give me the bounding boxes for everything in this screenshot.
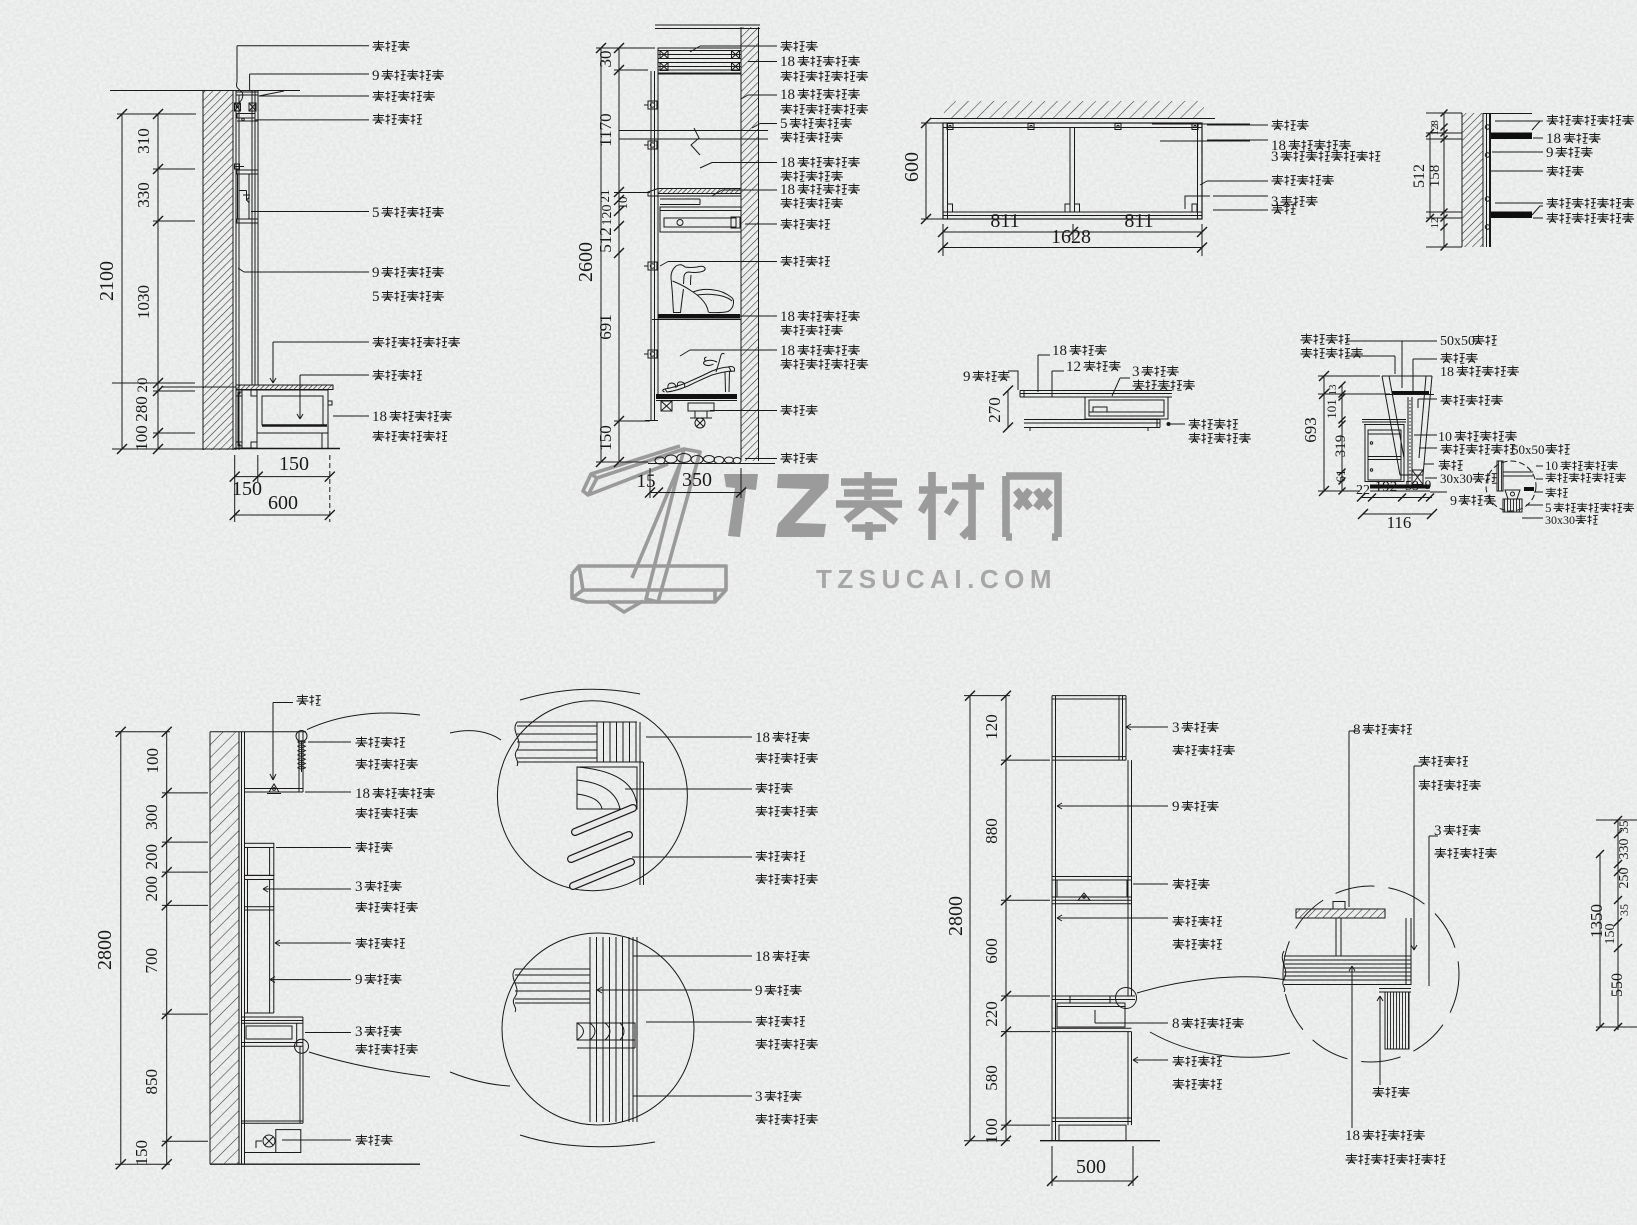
svg-text:3: 3 xyxy=(355,1024,363,1040)
svg-text:9: 9 xyxy=(1450,494,1457,509)
svg-text:3: 3 xyxy=(1132,364,1140,380)
svg-text:30x30: 30x30 xyxy=(1440,471,1473,486)
svg-text:150: 150 xyxy=(132,1140,151,1166)
svg-text:100: 100 xyxy=(143,748,162,774)
svg-text:10: 10 xyxy=(1438,430,1452,445)
svg-text:2100: 2100 xyxy=(96,261,118,301)
svg-text:18: 18 xyxy=(780,182,795,198)
svg-text:9: 9 xyxy=(355,972,363,988)
svg-text:3: 3 xyxy=(1434,823,1442,839)
svg-text:500: 500 xyxy=(1076,1156,1106,1178)
svg-text:30x30: 30x30 xyxy=(1545,513,1575,527)
svg-text:3: 3 xyxy=(1172,720,1180,736)
svg-text:1170: 1170 xyxy=(596,113,615,146)
svg-text:200: 200 xyxy=(142,844,161,870)
svg-text:22: 22 xyxy=(1356,483,1370,498)
svg-text:2800: 2800 xyxy=(945,896,967,936)
svg-text:10: 10 xyxy=(1545,458,1558,473)
svg-text:600: 600 xyxy=(901,152,923,182)
svg-text:100: 100 xyxy=(132,425,151,451)
svg-text:18: 18 xyxy=(780,155,795,171)
svg-text:3: 3 xyxy=(755,1089,763,1105)
svg-text:61: 61 xyxy=(1333,470,1348,483)
svg-text:150: 150 xyxy=(596,425,615,451)
svg-text:15: 15 xyxy=(637,471,656,492)
svg-text:18: 18 xyxy=(1052,343,1067,359)
svg-text:50x50: 50x50 xyxy=(1440,334,1475,349)
svg-text:9: 9 xyxy=(963,369,971,385)
svg-text:12: 12 xyxy=(1066,359,1081,375)
svg-text:3: 3 xyxy=(1271,149,1279,165)
svg-text:811: 811 xyxy=(1124,210,1153,232)
svg-text:8: 8 xyxy=(1353,722,1361,738)
svg-text:18: 18 xyxy=(780,309,795,325)
svg-text:5: 5 xyxy=(372,205,380,221)
svg-text:35: 35 xyxy=(1617,904,1631,916)
svg-text:550: 550 xyxy=(1609,973,1626,997)
svg-text:18: 18 xyxy=(780,343,795,359)
svg-text:280: 280 xyxy=(132,396,151,422)
svg-text:850: 850 xyxy=(142,1069,161,1095)
svg-text:200: 200 xyxy=(142,876,161,902)
svg-text:250: 250 xyxy=(1617,868,1632,889)
svg-text:270: 270 xyxy=(985,397,1004,423)
svg-text:12: 12 xyxy=(1429,125,1441,136)
svg-text:1628: 1628 xyxy=(1051,226,1091,248)
svg-text:18: 18 xyxy=(1345,1128,1360,1144)
svg-text:693: 693 xyxy=(1301,417,1320,443)
svg-text:120: 120 xyxy=(982,714,1001,740)
svg-text:811: 811 xyxy=(990,210,1019,232)
svg-text:18: 18 xyxy=(355,786,370,802)
svg-text:10: 10 xyxy=(615,197,630,210)
svg-text:150: 150 xyxy=(232,478,262,500)
svg-text:120: 120 xyxy=(600,205,615,226)
svg-text:9: 9 xyxy=(755,983,763,999)
svg-text:21: 21 xyxy=(597,190,612,203)
svg-text:1350: 1350 xyxy=(1587,904,1606,938)
svg-text:350: 350 xyxy=(682,469,712,491)
svg-text:2800: 2800 xyxy=(94,930,116,970)
svg-text:18: 18 xyxy=(755,730,770,746)
svg-text:18: 18 xyxy=(780,54,795,70)
svg-text:9: 9 xyxy=(1546,145,1554,161)
svg-text:20: 20 xyxy=(135,378,151,393)
svg-text:580: 580 xyxy=(982,1065,1001,1091)
svg-text:330: 330 xyxy=(134,182,153,208)
svg-text:116: 116 xyxy=(1387,513,1412,532)
svg-text:5: 5 xyxy=(372,289,380,305)
svg-text:330: 330 xyxy=(1617,839,1632,860)
svg-text:TZSUCAI.COM: TZSUCAI.COM xyxy=(816,564,1057,594)
svg-text:12: 12 xyxy=(1429,218,1441,229)
svg-text:50x50: 50x50 xyxy=(1512,442,1545,457)
svg-text:691: 691 xyxy=(596,314,615,340)
svg-text:101: 101 xyxy=(1324,399,1339,419)
svg-text:53: 53 xyxy=(1405,479,1419,494)
svg-text:5: 5 xyxy=(780,116,788,132)
svg-text:3: 3 xyxy=(355,879,363,895)
svg-text:9: 9 xyxy=(1425,477,1432,492)
svg-text:35: 35 xyxy=(1616,821,1631,834)
svg-text:18: 18 xyxy=(1440,365,1454,380)
svg-text:2600: 2600 xyxy=(575,242,597,282)
svg-text:192: 192 xyxy=(1375,479,1398,495)
svg-text:319: 319 xyxy=(1333,435,1349,458)
svg-text:1030: 1030 xyxy=(134,285,153,319)
svg-text:100: 100 xyxy=(982,1118,1001,1144)
svg-text:880: 880 xyxy=(982,818,1001,844)
svg-text:158: 158 xyxy=(1427,165,1443,188)
svg-text:18: 18 xyxy=(780,87,795,103)
svg-text:8: 8 xyxy=(1172,1016,1180,1032)
svg-text:18: 18 xyxy=(372,409,387,425)
svg-text:310: 310 xyxy=(134,128,153,154)
svg-text:9: 9 xyxy=(372,68,380,84)
svg-text:512: 512 xyxy=(1411,164,1428,188)
svg-text:9: 9 xyxy=(372,265,380,281)
svg-text:300: 300 xyxy=(142,804,161,830)
svg-text:220: 220 xyxy=(982,1001,1001,1027)
svg-text:150: 150 xyxy=(279,453,309,475)
svg-text:600: 600 xyxy=(268,492,298,514)
svg-text:700: 700 xyxy=(142,948,161,974)
svg-text:30: 30 xyxy=(596,51,615,68)
svg-text:600: 600 xyxy=(982,938,1001,964)
svg-text:512: 512 xyxy=(596,227,615,253)
svg-text:9: 9 xyxy=(1172,799,1180,815)
svg-text:18: 18 xyxy=(755,949,770,965)
